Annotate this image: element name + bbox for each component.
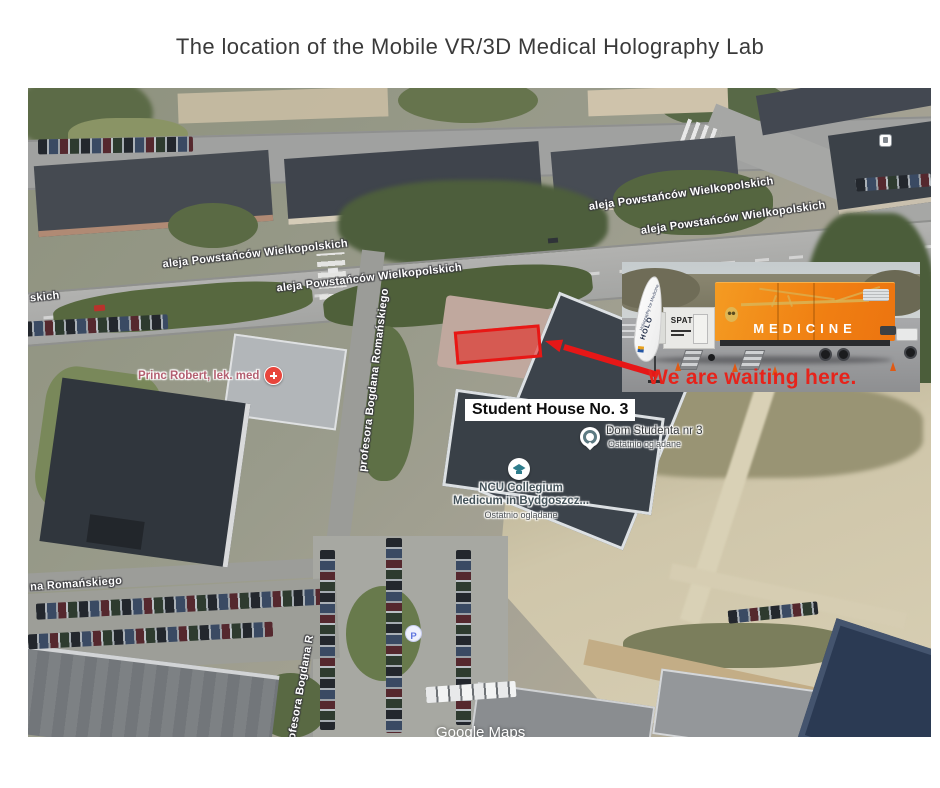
trailer-side-text: MEDICINE [715,321,895,336]
wheel [904,346,917,359]
poi-ncu-label: NCU Collegium Medicum in Bydgoszcz... [440,482,602,508]
car [94,305,105,312]
map-building [39,378,250,568]
skeleton-skull [725,307,738,322]
trailer-undercarriage [720,340,890,346]
map-trees [398,88,538,123]
parked-cars-column [320,550,335,730]
skeleton-bone [759,288,835,301]
student-house-label: Student House No. 3 [465,399,635,421]
logo-bar [671,330,691,332]
graduation-cap-icon [508,458,530,480]
trailer-orange-body: MEDICINE [715,282,895,341]
photo-car [880,326,896,335]
logo-bar [671,334,684,336]
page-title: The location of the Mobile VR/3D Medical… [0,34,940,60]
poi-ncu-sublabel: Ostatnio oglądane [440,510,602,520]
car [328,268,338,274]
satellite-map: aleja Powstańców Wielkopolskich aleja Po… [28,88,931,737]
poi-ncu-marker [508,458,530,480]
poi-dom-studenta-sublabel: Ostatnio oglądane [608,439,681,449]
trailer-front-unit: SPATIAL [663,307,715,349]
flag-logo [637,346,644,353]
map-trees [168,203,258,248]
poi-dom-studenta-marker [580,427,600,449]
waiting-here-text: We are waiting here. [648,366,923,390]
map-building [178,88,389,124]
parking-icon: P [405,625,422,642]
medical-cross-icon [264,366,283,385]
slide: The location of the Mobile VR/3D Medical… [0,0,940,788]
map-building [588,88,729,116]
google-maps-watermark: Google Maps [436,724,525,737]
bus-stop-icon [879,134,892,147]
parking-label: P [410,631,416,642]
poi-dom-studenta-label: Dom Studenta nr 3 [606,425,703,437]
wheel [819,348,832,361]
wheel [708,354,715,361]
wheel [837,348,850,361]
parked-cars-column [386,538,402,733]
skeleton-bone [741,299,869,306]
car [548,238,558,244]
poi-princ-robert-label: Princ Robert, lek. med [138,370,259,382]
unit-door [693,314,708,344]
trailer-vent-grille [863,289,889,301]
photo-car [896,328,918,341]
poi-princ-robert: Princ Robert, lek. med [138,366,283,385]
parked-cars-row [38,137,193,155]
